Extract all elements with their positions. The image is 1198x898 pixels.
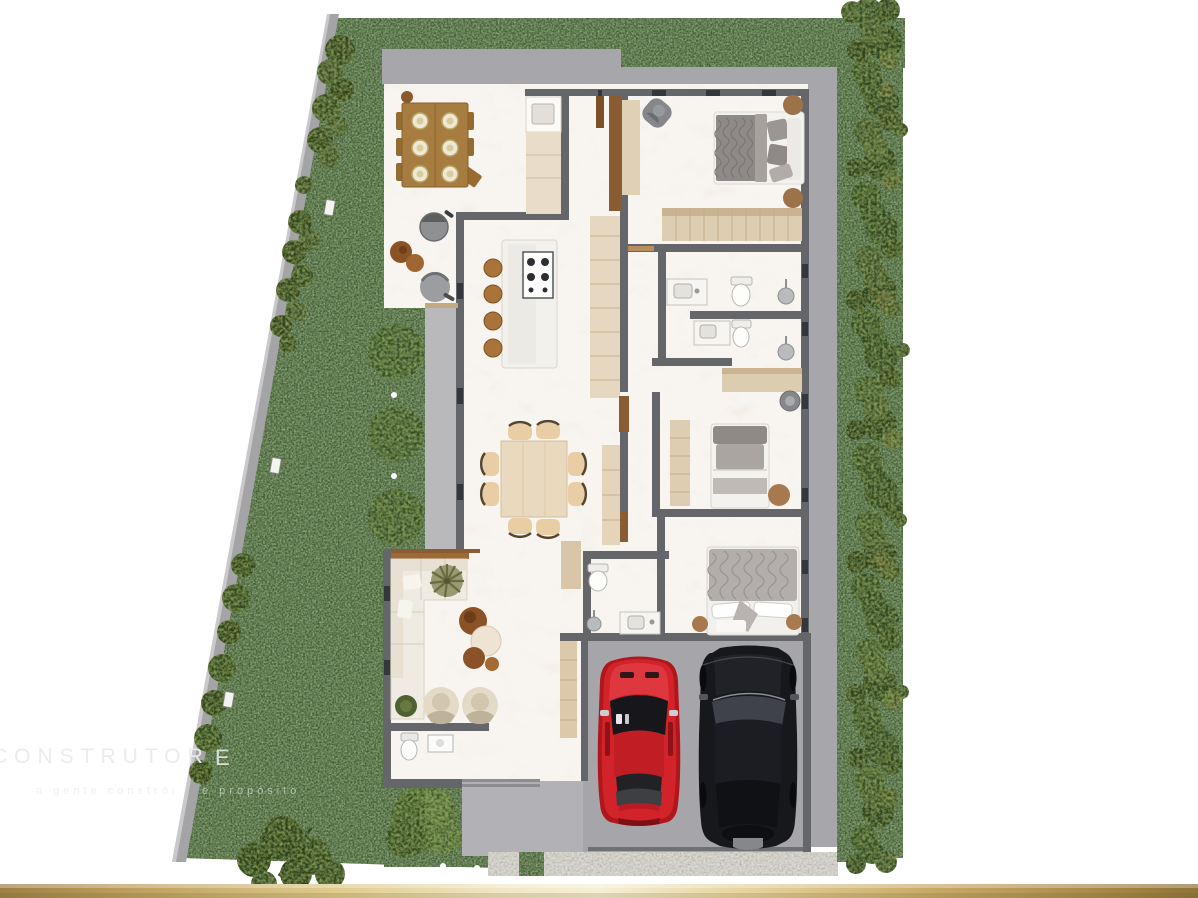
svg-text:E: E: [215, 745, 239, 770]
svg-text:e propósito: e propósito: [202, 785, 300, 797]
svg-text:CONSTRUTOR: CONSTRUTOR: [0, 745, 210, 768]
svg-text:a gente constrói: a gente constrói: [36, 785, 178, 797]
